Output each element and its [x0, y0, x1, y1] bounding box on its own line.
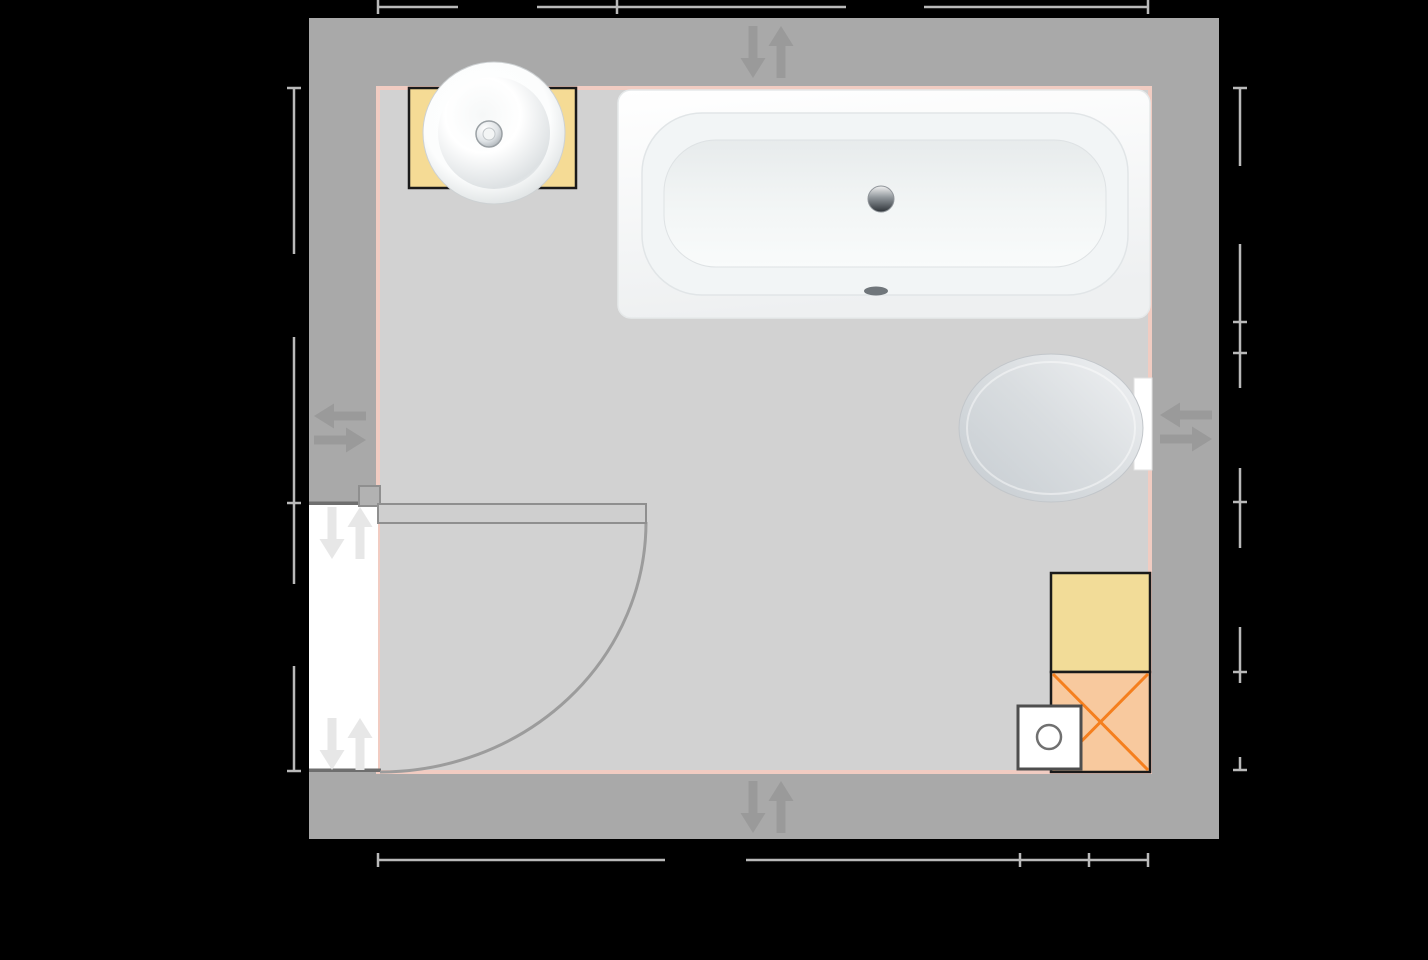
washbasin[interactable] — [423, 62, 565, 204]
floor-drain-box[interactable] — [1018, 706, 1081, 769]
door-lintel-bottom — [309, 769, 381, 773]
toilet-lid[interactable] — [959, 354, 1143, 502]
washbasin-drain-hole — [483, 128, 495, 140]
floor-plan — [0, 0, 1428, 960]
door-hinge — [359, 486, 380, 506]
door-leaf[interactable] — [378, 504, 646, 523]
drain-box-circle-icon — [1037, 725, 1061, 749]
storage-unit[interactable] — [1051, 573, 1150, 672]
bathtub-overflow-icon — [864, 287, 888, 296]
bathtub[interactable] — [618, 90, 1150, 318]
bathtub-drain-icon — [868, 186, 894, 212]
planner-canvas — [0, 0, 1428, 960]
